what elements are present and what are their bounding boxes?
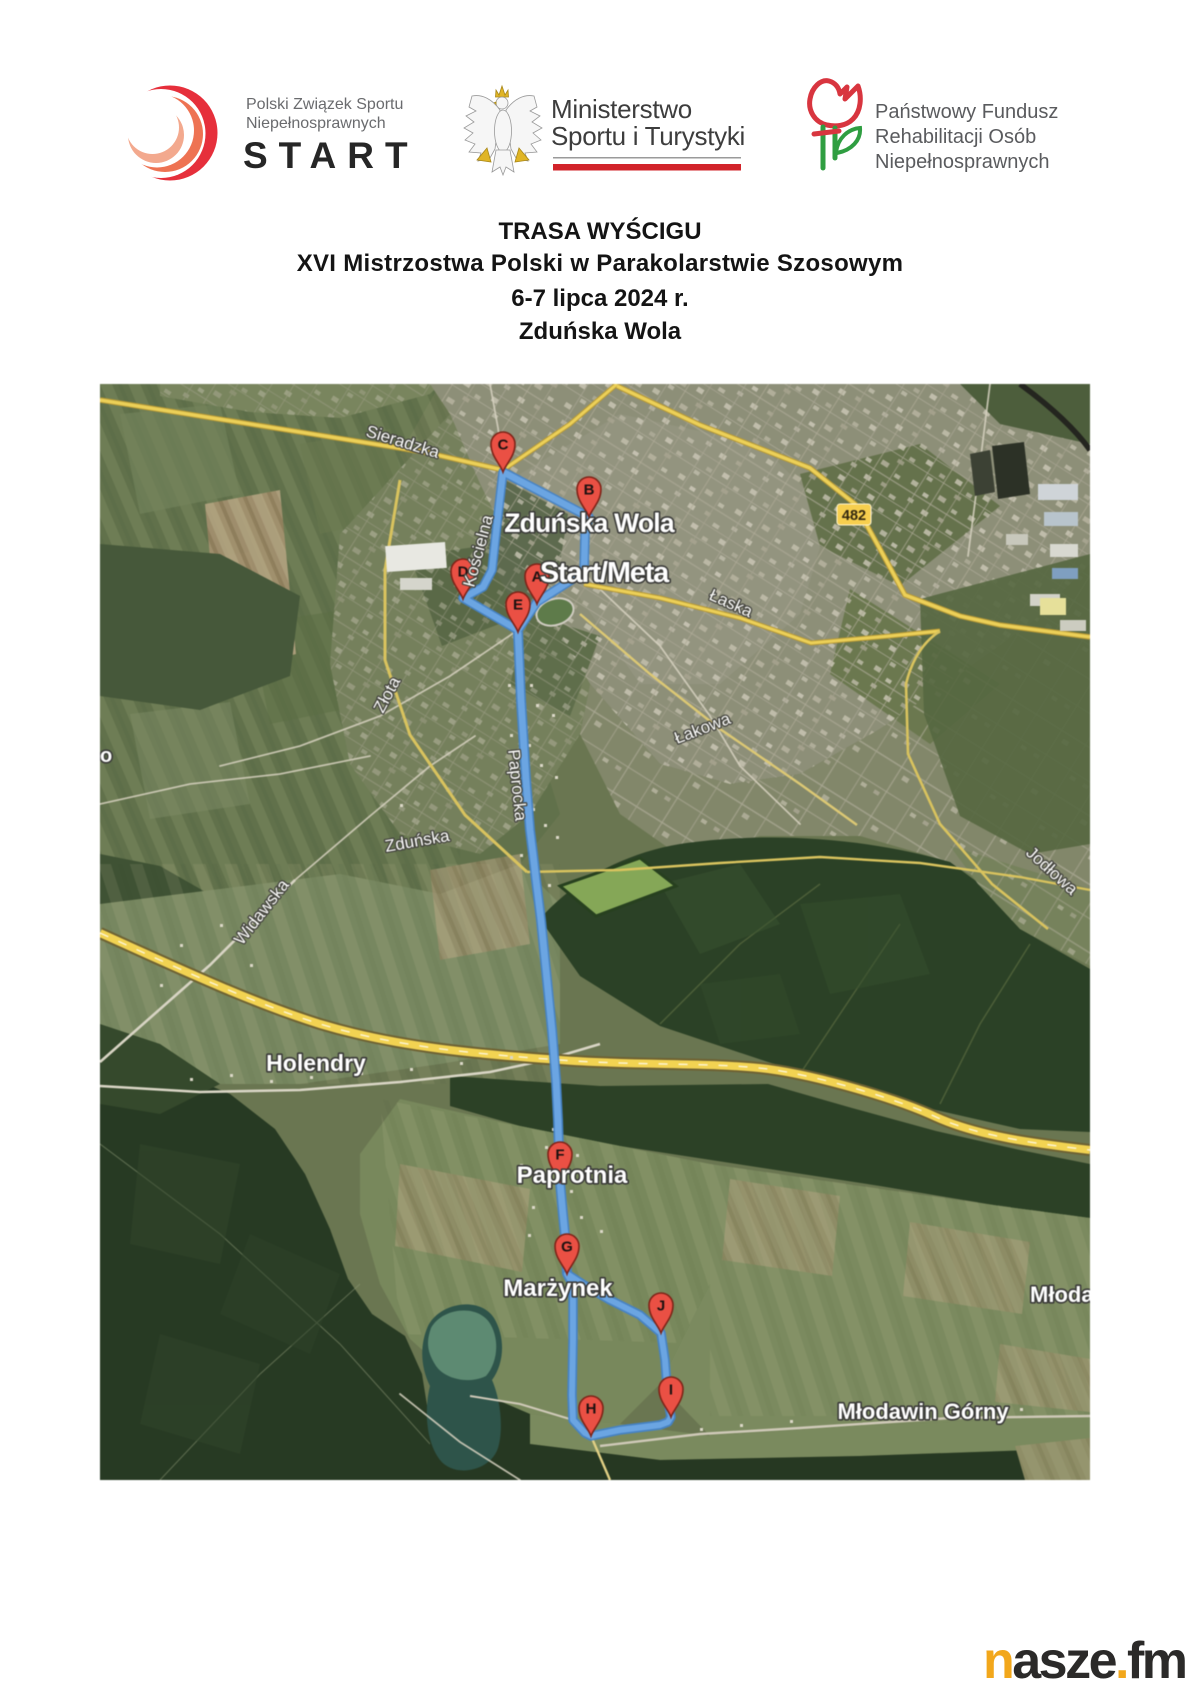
svg-text:I: I bbox=[669, 1382, 673, 1399]
svg-text:C: C bbox=[498, 437, 509, 454]
svg-text:START: START bbox=[243, 135, 419, 176]
svg-text:Paprotnia: Paprotnia bbox=[517, 1162, 628, 1189]
svg-text:Państwowy Fundusz: Państwowy Fundusz bbox=[875, 101, 1058, 123]
svg-text:Holendry: Holendry bbox=[266, 1050, 366, 1076]
svg-text:Rehabilitacji Osób: Rehabilitacji Osób bbox=[875, 126, 1036, 148]
svg-text:Marżynek: Marżynek bbox=[503, 1275, 613, 1302]
svg-text:E: E bbox=[513, 597, 523, 614]
svg-text:H: H bbox=[586, 1401, 597, 1418]
svg-text:Ministerstwo: Ministerstwo bbox=[551, 94, 692, 124]
svg-text:o: o bbox=[100, 745, 112, 767]
svg-text:F: F bbox=[555, 1147, 564, 1164]
svg-text:482: 482 bbox=[842, 508, 866, 524]
svg-text:B: B bbox=[584, 482, 595, 499]
svg-text:Polski Związek Sportu: Polski Związek Sportu bbox=[246, 96, 403, 113]
svg-text:G: G bbox=[561, 1239, 573, 1256]
svg-text:Niepełnosprawnych: Niepełnosprawnych bbox=[246, 115, 386, 132]
svg-text:Zduńska Wola: Zduńska Wola bbox=[504, 508, 675, 538]
svg-text:Sportu i Turystyki: Sportu i Turystyki bbox=[551, 121, 745, 151]
svg-text:Niepełnosprawnych: Niepełnosprawnych bbox=[875, 151, 1050, 173]
svg-text:Młodawin Górny: Młodawin Górny bbox=[837, 1399, 1009, 1424]
svg-text:J: J bbox=[657, 1298, 665, 1315]
svg-text:Młodaw: Młodaw bbox=[1030, 1282, 1090, 1307]
svg-text:Start/Meta: Start/Meta bbox=[540, 557, 670, 589]
